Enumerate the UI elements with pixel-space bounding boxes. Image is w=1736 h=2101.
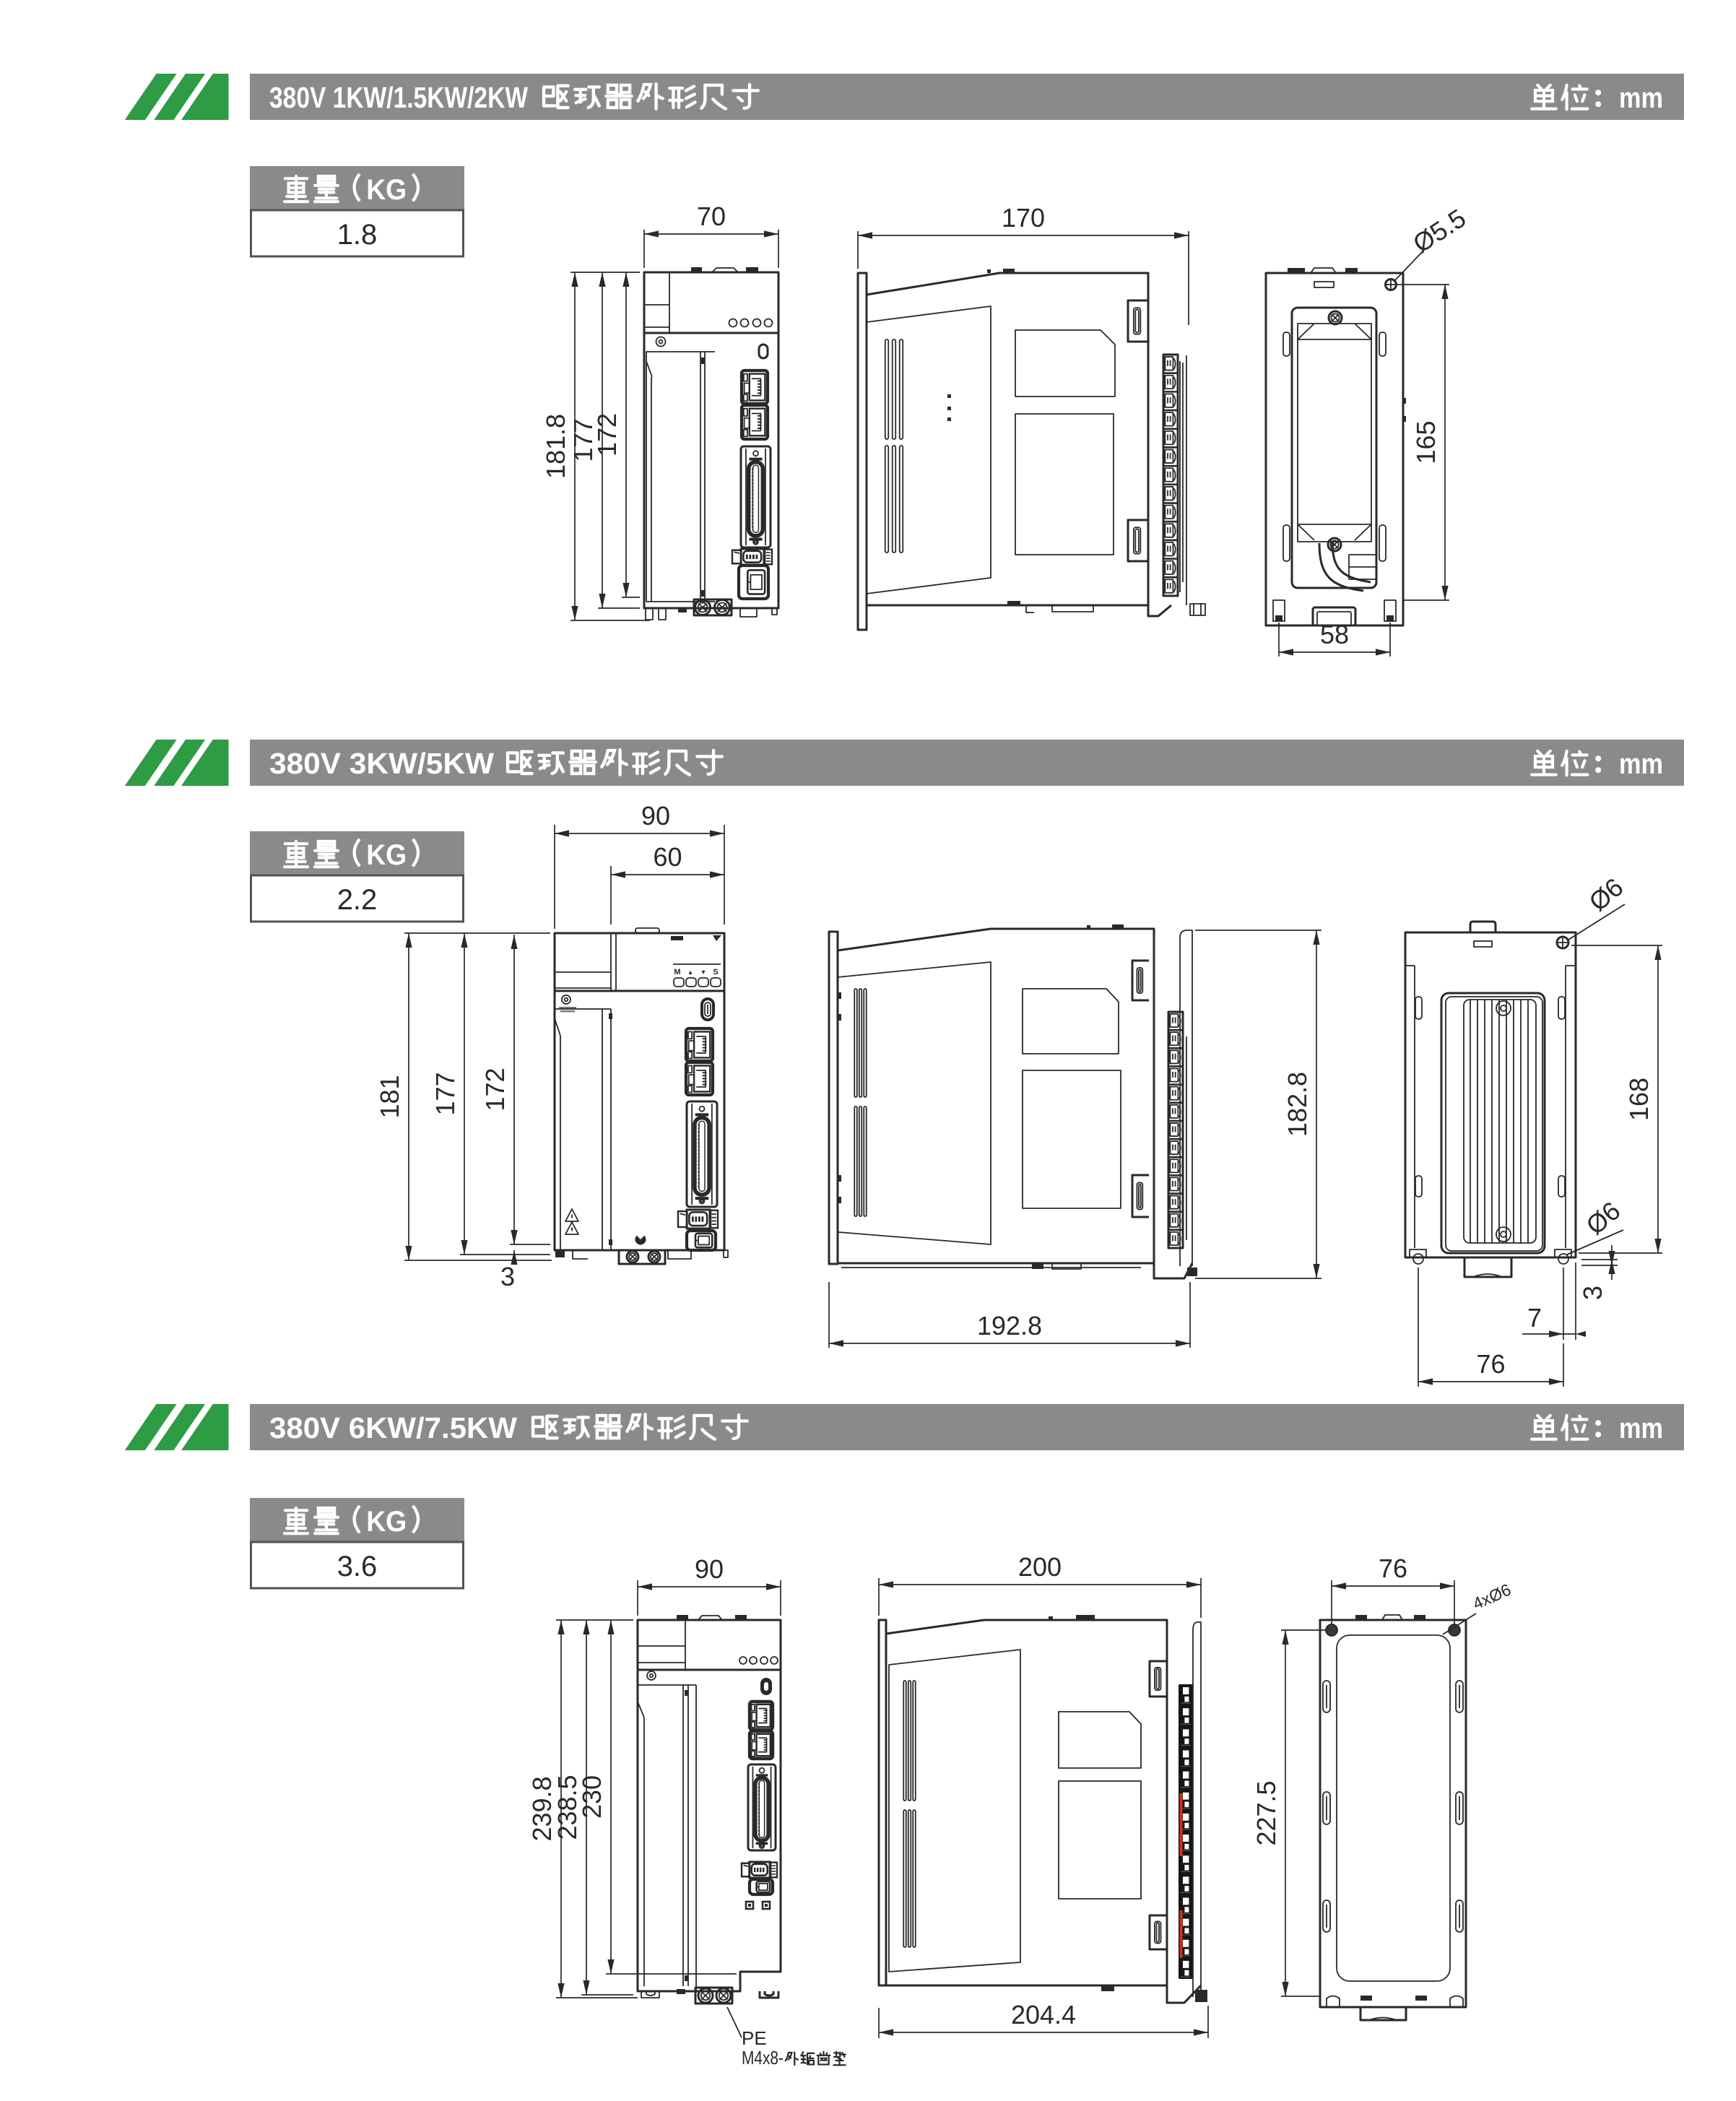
- svg-text:380V 1KW/1.5KW/2KW: 380V 1KW/1.5KW/2KW: [269, 81, 528, 114]
- svg-text:7: 7: [1527, 1303, 1542, 1333]
- svg-text:172: 172: [592, 413, 622, 456]
- svg-text:Ø5.5: Ø5.5: [1407, 203, 1471, 259]
- svg-text:Ø6: Ø6: [1580, 1195, 1626, 1240]
- svg-text:mm: mm: [1619, 82, 1663, 114]
- svg-text:177: 177: [430, 1072, 460, 1115]
- svg-text:PE: PE: [742, 2027, 767, 2049]
- svg-text:mm: mm: [1619, 748, 1663, 780]
- svg-text:172: 172: [480, 1067, 510, 1111]
- svg-text:4xØ6: 4xØ6: [1470, 1580, 1514, 1613]
- svg-text:227.5: 227.5: [1251, 1780, 1281, 1845]
- svg-text:KG: KG: [366, 174, 407, 206]
- svg-text:70: 70: [697, 202, 726, 231]
- svg-text:M: M: [674, 968, 680, 976]
- svg-text:Ø6: Ø6: [1583, 872, 1628, 917]
- svg-text:S: S: [713, 968, 718, 976]
- svg-text:▴: ▴: [688, 969, 692, 976]
- svg-text:3: 3: [500, 1262, 515, 1291]
- svg-text:230: 230: [577, 1775, 607, 1819]
- svg-text:380V 3KW/5KW: 380V 3KW/5KW: [269, 747, 494, 780]
- svg-text:mm: mm: [1619, 1413, 1663, 1444]
- svg-text:90: 90: [641, 801, 670, 831]
- svg-text:M4x8-: M4x8-: [742, 2047, 784, 2068]
- svg-text:KG: KG: [366, 839, 407, 871]
- svg-text:204.4: 204.4: [1011, 2000, 1076, 2029]
- svg-text:380V 6KW/7.5KW: 380V 6KW/7.5KW: [269, 1411, 517, 1444]
- svg-text:▾: ▾: [701, 969, 705, 976]
- svg-text:168: 168: [1624, 1078, 1654, 1121]
- svg-text:76: 76: [1379, 1554, 1407, 1583]
- svg-text:1.8: 1.8: [337, 219, 378, 251]
- svg-text:3.6: 3.6: [337, 1551, 378, 1582]
- svg-text:3: 3: [1578, 1286, 1607, 1300]
- svg-text:58: 58: [1320, 620, 1349, 649]
- svg-text:165: 165: [1411, 420, 1441, 464]
- svg-text:192.8: 192.8: [977, 1311, 1042, 1340]
- svg-text:2.2: 2.2: [337, 884, 378, 916]
- svg-text:182.8: 182.8: [1283, 1072, 1312, 1137]
- svg-text:90: 90: [695, 1554, 724, 1584]
- svg-text:KG: KG: [366, 1506, 407, 1538]
- svg-text:200: 200: [1018, 1552, 1062, 1582]
- svg-text:170: 170: [1002, 203, 1045, 233]
- svg-text:76: 76: [1476, 1349, 1505, 1379]
- svg-text:60: 60: [653, 842, 682, 872]
- svg-text:181.8: 181.8: [541, 414, 570, 479]
- svg-text:181: 181: [375, 1075, 404, 1118]
